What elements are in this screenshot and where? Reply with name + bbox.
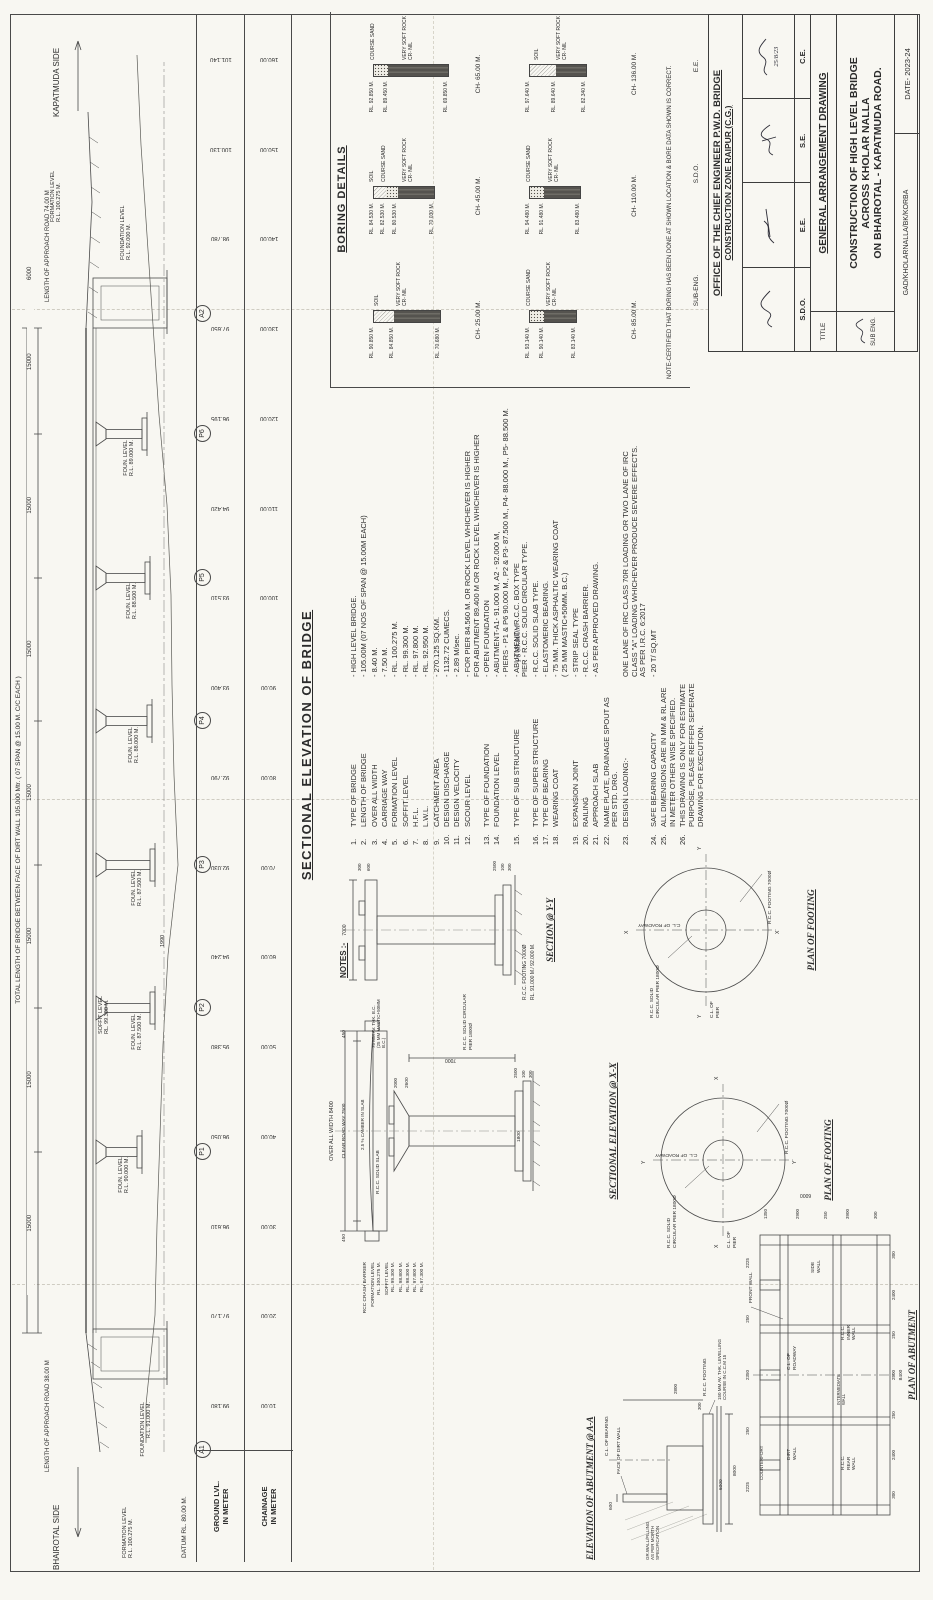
chainage-cell: 30.00 [245,1181,293,1271]
sub-eng-label: SUB ENG. [871,317,878,346]
foundation-level-a2: FOUNDATION LEVEL R.L. 92.000 M. [120,205,133,260]
note-value [603,380,621,677]
ground-level-value: 96.195 [211,415,229,421]
bore-log-ch136: RL. 97.640 M. RL. 89.640 M. RL. 82.340 M… [513,15,663,133]
note-value: - OPEN FOUNDATION [483,380,492,677]
bore-rl: RL. 89.640 M. [551,81,557,133]
clear-roadway-dim: CLEAR ROAD WAY 7500 [342,1006,348,1256]
yy-cap-dim: 300 [357,863,362,871]
chainage-cell: 70.00 [245,822,293,912]
soffit-label: SOFFIT LEVEL RL. 99.300 M. [385,1262,396,1346]
bore-log-ch25: RL. 90.850 M. RL. 84.850 M. RL. 70.680 M… [357,261,507,379]
axis-y-right: Y [698,847,704,850]
chainage-cell: 80.00 [245,732,293,822]
chainage-header: CHAINAGE IN METER [245,1450,293,1562]
dim-1990: 1990 [160,935,166,947]
yy-footing-dim-3: 300 [507,863,512,871]
rock-layer [544,311,576,322]
ground-level-cell: 98.780 [197,194,244,284]
note-number: 16. [532,827,541,845]
crash-barrier-label: RCC CRASH BARRIER [363,1262,369,1346]
cl-roadway-label: C.L. OF ROADWAY [638,921,680,927]
note-label: CATCHMENT AREA [433,677,442,827]
ground-level-value: 95.380 [211,1043,229,1049]
cl-roadway-label: C.L. OF ROADWAY [787,1346,798,1370]
note-number: 10. [443,827,452,845]
note-label: DESIGN DISCHARGE [443,677,452,827]
camber-label: 2.5 % CAMBER IN SLAB [360,1099,365,1150]
overall-width-dim: OVER ALL WIDTH 8400 [329,1006,335,1256]
note-row: 22. NAME PLATE, DRAINAGE SPOUT AS PER ST… [603,380,621,845]
abutment-plan: 222525023502502225 COUNTERFORT DIRT WALL… [745,1165,917,1555]
note-row: 16. TYPE OF SUPER STRUCTURE - R.C.C. SOL… [532,380,541,845]
bore-bar [373,64,449,77]
note-value: - 7.50 M. [381,380,390,677]
note-value: - RL. 99.300 M. [402,380,411,677]
note-label: ALL DIMENSIONS ARE IN MM & RL ARE IN MET… [660,677,678,827]
bore-chainage: CH- 65.00 M. [475,15,482,133]
span-dim: 15000 [27,290,34,434]
note-row: 26. THIS DRAWING IS ONLY FOR ESTIMATE PU… [679,380,706,845]
edge-dim-right: 450 [342,1030,348,1038]
ground-level-value: 96.050 [211,1133,229,1139]
fill-note: GR.WALL/FILLING AS PER MORTH SPECIFICATI… [645,1512,661,1560]
note-value: - ELASTOMERIC BEARING. [542,380,551,677]
note-row: 11. DESIGN VELOCITY - 2.89 M/sec. [453,380,462,845]
note-row: 6. SOFFIT LEVEL - RL. 99.300 M. [402,380,411,845]
footing-dia-label: R.C.C. FOOTING 7000Ø [785,1101,791,1154]
chainage-value: 120.00 [260,415,278,421]
cl-pier-label: C.L. OF PIER [710,1001,721,1018]
level-2: RL. 98.300 M. [406,1262,412,1346]
rock-layer [398,187,434,198]
note-label: L.W.L. [422,677,431,827]
cap-height-dim: 2000 [393,1078,398,1088]
yy-footing-dim-2: 100 [500,863,505,871]
cl-bearing-label: C.L. OF BEARING [605,1416,611,1456]
bore-rl: RL. 92.850 M. [369,81,375,133]
note-value: - 75 MM. THICK ASPHALTIC WEARING COAT ( … [552,380,570,677]
plan-dim-right-4: 3900 [845,1209,850,1219]
note-number: 13. [483,827,492,845]
note-number: 20. [582,827,591,845]
note-label: WEARING COAT [552,677,570,827]
side-right-label: KAPATMUDA SIDE [52,48,62,117]
pier-foundation-p4: FOUN. LEVEL R.L. 88.000 M. [128,727,141,785]
ground-level-value: 97.170 [211,1312,229,1318]
note-row: 10. DESIGN DISCHARGE - 1132.72 CUMECS. [443,380,452,845]
note-value: - ABUTMENT-A1- 91.000 M, A2 - 92.000 M, … [493,380,511,677]
pier-height-dim: 7000 [445,1056,456,1062]
chainage-value: 10.00 [261,1402,276,1408]
plan-dim: 300 [891,1475,896,1515]
note-row: 2. LENGTH OF BRIDGE - 105.00M (07 NOS OF… [360,380,369,845]
abut-dim-2800: 2800 [673,1384,678,1394]
layer-name: COURSE SAND [382,137,388,182]
note-label: TYPE OF FOUNDATION [483,677,492,827]
note-number: 15. [513,827,531,845]
office-line-2: CONSTRUCTION ZONE RAIPUR (C.G.) [723,15,733,351]
ground-level-cell: 94.420 [197,463,244,553]
sig-strip-sub-eng: SUB-ENG. [693,275,701,306]
bore-bar [529,310,577,323]
layer-name: SOIL [535,15,541,60]
bore-rl: RL. 97.640 M. [525,81,531,133]
ground-level-value: 92.030 [211,864,229,870]
note-row: 5. FORMATION LEVEL - RL. 100.275 M. [391,380,400,845]
chainage-value: 110.00 [260,505,278,511]
label-sdo: S.D.O. [795,267,810,351]
layer-name: SOIL [375,261,381,306]
note-number: 3. [371,827,380,845]
note-label: TYPE OF SUB STRUCTURE [513,677,531,827]
footing-dia-label: R.C.C. FOOTING 7000Ø [768,871,774,924]
axis-x-left: X [715,1245,721,1248]
chainage-value: 100.00 [260,594,278,600]
note-value: - RL. 100.275 M. [391,380,400,677]
solid-slab-label: R.C.C. SOLID SLAB [376,1150,382,1194]
plan-dims-bottom: 300240025025002502400300 [891,1235,896,1515]
note-value [679,380,706,677]
ground-level-cell: 95.380 [197,1001,244,1091]
abut-dim-300: 300 [697,1402,702,1410]
note-label: RAILING [582,677,591,827]
note-value: - 20 T/ SQ.MT [650,380,659,677]
ground-level-cell: 101.140 [197,14,244,104]
note-label: SOFFIT LEVEL [402,677,411,827]
pier-foundation-p1: FOUN. LEVEL R.L. 90.000 M. [118,1157,131,1215]
chainage-value: 140.00 [260,235,278,241]
note-label: H.F.L. [412,677,421,827]
yy-footing-label: R.C.C. FOOTING 7000Ø [523,944,529,1000]
soil-layer [374,311,394,322]
front-wall-label: FRONT WALL [749,1272,755,1303]
pier-shapes [96,412,155,1174]
formation-level-right: FORMATION LEVEL R.L. 100.275 M. [50,171,63,222]
note-label: SCOUR LEVEL [464,677,482,827]
rock-layer [556,65,586,76]
abut-dim-8000: 8000 [733,1465,739,1476]
note-number: 2. [360,827,369,845]
plan-dim-right-5: 300 [873,1211,878,1219]
rock-layer [394,311,440,322]
pier-foundation-p6: FOUN. LEVEL R.L. 89.000 M. [123,440,136,498]
note-row: 4. CARRIAGE WAY - 7.50 M. [381,380,390,845]
note-row: 3. OVER ALL WIDTH - 8.40 M. [371,380,380,845]
end-dim: 6000 [27,267,34,280]
rear-wall-label: R.C.C. REAR WALL [841,1456,858,1470]
layer-name: VERY SOFT ROCK CR- NIL [397,261,408,306]
boring-details-panel: BORING DETAILS RL. 90.850 M. RL. 84.850 … [330,12,690,388]
plan-dim: 250 [745,1403,750,1459]
bore-rl: RL. 82.340 M. [581,81,587,133]
layer-name: VERY SOFT ROCK CR- NIL [403,137,414,182]
ground-level-cell: 92.030 [197,822,244,912]
boring-title: BORING DETAILS [336,11,348,387]
span-dims-row: 15000150001500015000150001500015000 [27,290,34,1295]
signature-ce: 25/8/23 [743,15,794,98]
bore-bar [529,186,581,199]
project-title: CONSTRUCTION OF HIGH LEVEL BRIDGE ACROSS… [837,15,894,311]
note-number: 9. [433,827,442,845]
pier-circular-label: R.C.C. SOLID CIRCULAR PIER 1800Ø [650,965,661,1018]
chainage-value: 80.00 [261,774,276,780]
bore-log-ch85: RL. 93.140 M. RL. 90.140 M. RL. 83.140 M… [513,261,663,379]
note-label: SAFE BEARING CAPACITY [650,677,659,827]
bore-rl: RL. 94.480 M. [525,203,531,255]
section-xx-title: SECTIONAL ELEVATION @ X-X [609,1006,619,1256]
ground-level-cell: 93.510 [197,553,244,643]
chainage-cell: 50.00 [245,1001,293,1091]
note-label: DESIGN LOADING:- [622,677,649,827]
section-yy-title: SECTION @ Y-Y [545,850,555,1010]
shaft-dim: 1800 [517,1131,523,1142]
note-number: 17. [542,827,551,845]
ground-level-cell: 96.610 [197,1181,244,1271]
span-dim: 15000 [27,577,34,721]
chainage-cell: 40.00 [245,1091,293,1181]
drawing-date: DATE- 2023-24 [895,15,919,133]
ground-level-cell: 97.650 [197,283,244,373]
chainage-cell: 150.00 [245,104,293,194]
formation-label: FORMATION LEVEL RL. 100.275 M. [371,1262,382,1346]
bore-rl: RL. 90.850 M. [369,327,375,379]
ground-level-value: 96.610 [211,1223,229,1229]
axis-y-top: Y [642,1161,648,1164]
note-number: 14. [493,827,511,845]
span-dim: 15000 [27,434,34,578]
axis-y-bottom: Y [793,1161,799,1164]
note-row: 7. H.F.L. - RL. 97.800 M. [412,380,421,845]
chainage-cell: 100.00 [245,553,293,643]
ground-level-cell: 94.240 [197,912,244,1002]
approval-date: 25/8/23 [773,47,781,67]
plan-dim: 2500 [891,1355,896,1395]
ground-level-cell: 96.050 [197,1091,244,1181]
bore-rl: RL. 69.850 M. [443,81,449,133]
bore-rl: RL. 80.530 M. [392,203,398,255]
plan-dim: 2225 [745,1459,750,1515]
bore-rl: RL. 83.140 M. [571,327,577,379]
dirt-wall-label: DIRT WALL [787,1447,798,1460]
plan-dim-right-1: 1350 [763,1209,768,1219]
ground-level-value: 94.240 [211,953,229,959]
signature-strip: SUB-ENG. S.D.O. E.E. [688,14,706,352]
bore-log-ch65: RL. 92.850 M. RL. 89.450 M. RL. 69.850 M… [357,15,507,133]
chainage-value: 70.00 [261,864,276,870]
chainage-value: 160.00 [260,56,278,62]
pier-foundation-p3: FOUN. LEVEL R.L. 87.500 M. [131,870,144,928]
plan-width-total: 8400 [899,1235,905,1515]
chainage-cell: 160.00 [245,14,293,104]
chainage-cell: 10.00 [245,1360,293,1450]
bore-log-ch45: RL. 84.530 M. RL. 82.530 M. RL. 80.530 M… [357,137,507,255]
dirt-wall-dim: 600 [609,1502,615,1510]
ground-level-cell: 92.790 [197,732,244,822]
layer-name: VERY SOFT ROCK CR- NIL [549,137,560,182]
bore-chainage: CH- 110.00 M. [631,137,638,255]
section-yy: 7000 300 600 2500 100 300 R.C.C. FOOTING… [345,845,575,1015]
label-se: S.E. [795,98,810,182]
note-label: TYPE OF BEARING [542,677,551,827]
chainage-value: 130.00 [260,325,278,331]
footing-dim-2: 100 [521,1070,526,1078]
note-value: - 2.89 M/sec. [453,380,462,677]
rock-layer [388,65,448,76]
signature-se [743,98,794,182]
layer-name: COURSE SAND [527,137,533,182]
note-number: 19. [572,827,581,845]
plan-dim-right-3: 250 [823,1211,828,1219]
note-row: 23. DESIGN LOADING:- ONE LANE OF IRC CLA… [622,380,649,845]
pier-circular-label: R.C.C. SOLID CIRCULAR PIER 1800Ø [667,1195,678,1248]
note-value: - 1132.72 CUMECS. [443,380,452,677]
axis-y-left: Y [698,1015,704,1018]
axis-x-bottom: X [776,931,782,934]
plan-depth-total: 6000 [800,1191,811,1197]
abutment-plan-title: PLAN OF ABUTMENT [907,1255,917,1455]
soil-layer [374,187,386,198]
note-row: 18. WEARING COAT - 75 MM. THICK ASPHALTI… [552,380,570,845]
span-dim: 15000 [27,864,34,1008]
ground-level-value: 94.420 [211,505,229,511]
ground-level-value: 93.510 [211,594,229,600]
side-left-label: BHAIROTAL SIDE [52,1505,62,1570]
ground-level-cell: 93.400 [197,642,244,732]
note-value: - RL. 97.800 M. [412,380,421,677]
sand-layer [530,311,544,322]
note-number: 12. [464,827,482,845]
bore-rl: RL. 82.530 M. [380,203,386,255]
bore-rl: RL. 93.140 M. [525,327,531,379]
note-number: 7. [412,827,421,845]
note-row: 15. TYPE OF SUB STRUCTURE - ABUTMENT - R… [513,380,531,845]
chainage-cell: 90.00 [245,642,293,732]
datum-label: DATUM RL. 80.00 M. [181,1496,189,1558]
elevation-title: SECTIONAL ELEVATION OF BRIDGE [299,580,314,910]
note-row: 25. ALL DIMENSIONS ARE IN MM & RL ARE IN… [660,380,678,845]
bore-rl: RL. 70.680 M. [435,327,441,379]
sig-strip-sdo: S.D.O. [693,164,701,184]
level-4: RL. 97.300 M. [420,1262,426,1346]
chainage-value: 150.00 [260,146,278,152]
bore-bar [373,310,441,323]
yy-footing-rl: RL. 91.000 M./ 92.000 M. [531,944,537,1000]
cap-dim: 2600 [405,1077,411,1088]
note-row: 1. TYPE OF BRIDGE - HIGH LEVEL BRIDGE. [350,380,359,845]
note-value: - FOR PIER 84.560 M. OR ROCK LEVEL WHICH… [464,380,482,677]
note-row: 12. SCOUR LEVEL - FOR PIER 84.560 M. OR … [464,380,482,845]
office-line-1: OFFICE OF THE CHIEF ENGINEER P.W.D. BRID… [712,15,723,351]
note-label: APPROACH SLAB [592,677,601,827]
note-value [660,380,678,677]
bore-chainage: CH- 25.00 M. [475,261,482,379]
levelling-course-label: 150 MM AV. THK. LEVELLING COURSE IN C.C.… [717,1339,727,1400]
note-row: 8. L.W.L. - RL. 92.950 M. [422,380,431,845]
ground-level-value: 100.130 [210,146,232,152]
note-row: 24. SAFE BEARING CAPACITY - 20 T/ SQ.MT [650,380,659,845]
note-number: 6. [402,827,411,845]
ground-level-value: 92.790 [211,774,229,780]
yy-top-dim: 7000 [343,880,349,980]
ground-level-value: 98.780 [211,235,229,241]
counterfort-label: COUNTERFORT [759,1446,764,1480]
note-value: - AS PER APPROVED DRAWING. [592,380,601,677]
abutment-elevation: ELEVATION OF ABUTMENT @ A-A 600 FACE OF … [585,1260,745,1560]
yy-footing-dim-1: 2500 [492,861,497,871]
notes-list: 1. TYPE OF BRIDGE - HIGH LEVEL BRIDGE. 2… [350,380,707,845]
footing-dim-3: 300 [528,1070,533,1078]
bore-log-ch110: RL. 94.480 M. RL. 91.480 M. RL. 83.480 M… [513,137,663,255]
title-block: OFFICE OF THE CHIEF ENGINEER P.W.D. BRID… [708,14,918,352]
note-number: 22. [603,827,621,845]
ground-level-cell: 97.170 [197,1271,244,1361]
note-label: TYPE OF BRIDGE [350,677,359,827]
ground-level-value: 99.180 [211,1402,229,1408]
ground-level-values: 99.18097.17096.61096.05095.38094.24092.0… [197,14,244,1450]
soil-layer [530,65,556,76]
chainage-cell: 120.00 [245,373,293,463]
chainage-value: 40.00 [261,1133,276,1139]
note-number: 18. [552,827,570,845]
plan-dim: 250 [891,1395,896,1435]
cl-roadway-label: C.L. OF ROADWAY [655,1151,697,1157]
plan-dim: 250 [891,1315,896,1355]
signatures-row: 25/8/23 [743,15,795,351]
note-value: - RL. 92.950 M. [422,380,431,677]
office-row: OFFICE OF THE CHIEF ENGINEER P.W.D. BRID… [709,15,743,351]
span-dim: 15000 [27,721,34,865]
bore-rl: RL. 84.530 M. [369,203,375,255]
bore-chainage: CH- 136.00 M. [631,15,638,133]
layer-name: COURSE SAND [371,15,377,60]
approach-left-label: LENGTH OF APPROACH ROAD 38.00 M [45,1360,52,1472]
pier-foundation-p5: FOUN. LEVEL R.L. 88.500 M. [126,583,139,641]
scanned-drawing-sheet: TOTAL LENGTH OF BRIDGE BETWEEN FACE OF D… [0,0,933,1600]
note-value: - 8.40 M. [371,380,380,677]
footing-plan-2: Y Y X X C.L. OF ROADWAY C.L. OF PIER R.C… [628,840,833,1020]
plan-dim: 2400 [891,1275,896,1315]
note-label: FOUNDATION LEVEL [493,677,511,827]
note-label: DESIGN VELOCITY [453,677,462,827]
ground-level-header: GROUND LVL. IN METER [197,1450,245,1562]
chainage-cell: 140.00 [245,194,293,284]
ground-level-cell: 99.180 [197,1360,244,1450]
note-label: CARRIAGE WAY [381,677,390,827]
footing-dim-1: 2500 [513,1068,518,1078]
intermediate-wall-label: INTERMEDIATE WALL [837,1374,846,1405]
bore-rl: RL. 89.450 M. [383,81,389,133]
signature-sdo [743,267,794,351]
note-number: 5. [391,827,400,845]
chainage-cell: 110.00 [245,463,293,553]
cl-pier-label: C.L. OF PIER [727,1231,738,1248]
level-1: RL. 98.800 M. [399,1262,405,1346]
ground-level-row: GROUND LVL. IN METER 99.18097.17096.6109… [197,14,245,1562]
chainage-value: 90.00 [261,684,276,690]
formation-level-left: FORMATION LEVEL R.L. 100.275 M. [122,1507,135,1558]
note-label: EXPANSION JOINT [572,677,581,827]
note-row: 21. APPROACH SLAB - AS PER APPROVED DRAW… [592,380,601,845]
sub-eng-cell: SUB ENG. [837,311,894,351]
bore-bar [373,186,435,199]
note-label: OVER ALL WIDTH [371,677,380,827]
drawing-number: GAD/KHOLARNALLA/BK/KORBA [895,133,919,351]
layer-name: VERY SOFT ROCK CR- NIL [547,261,558,306]
sand-layer [530,187,544,198]
note-value: - 270.125 SQ.KM. [433,380,442,677]
abut-dim-6000: 6000 [719,1479,725,1490]
